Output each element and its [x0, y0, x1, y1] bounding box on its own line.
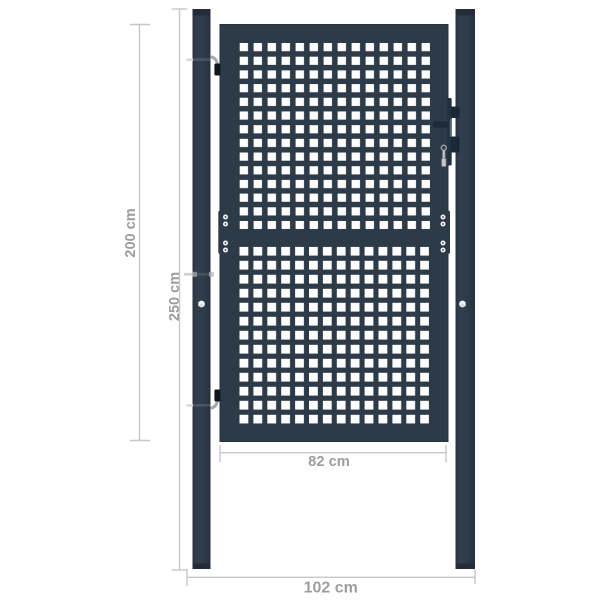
svg-text:250 cm: 250 cm [167, 272, 183, 321]
svg-text:200 cm: 200 cm [123, 208, 139, 257]
svg-text:82 cm: 82 cm [308, 454, 350, 470]
svg-text:102 cm: 102 cm [304, 580, 358, 597]
